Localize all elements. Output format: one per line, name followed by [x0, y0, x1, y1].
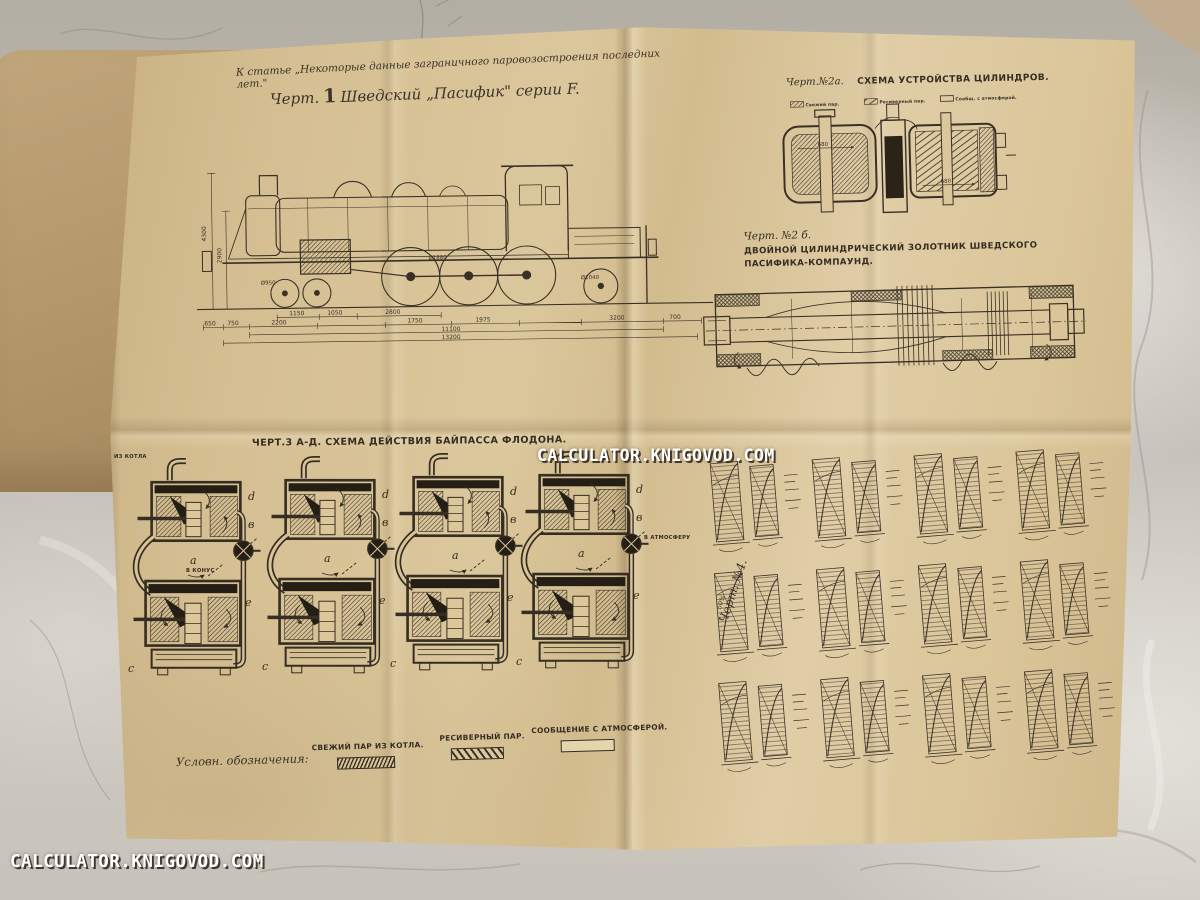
- bypass-side-label: в атмосферу: [644, 535, 690, 541]
- bypass-diagram: в атмосферуaвcde: [516, 449, 652, 689]
- bypass-top-label: из котла: [114, 454, 147, 460]
- bypass-side-label: в конус: [186, 568, 215, 574]
- legend-label-receiver: Ресиверный пар.: [439, 731, 525, 742]
- part-letter: в: [510, 513, 516, 526]
- legend-label-fresh: Свежий пар из котла.: [312, 740, 424, 752]
- indicator-diagram-cell: [916, 661, 1020, 771]
- indicator-diagram-cell: [1009, 437, 1113, 547]
- part-letter: d: [510, 485, 517, 498]
- indicator-diagram-cell: [814, 664, 918, 774]
- indicator-diagram-cell: [810, 555, 914, 665]
- fig2a-legend-2: Сообщ. с атмосферой.: [955, 94, 1017, 103]
- legend-title: Условн. обозначения:: [176, 751, 309, 769]
- dim-row1-0: 650: [204, 320, 216, 327]
- part-letter: c: [128, 662, 134, 675]
- indicator-diagram-cell: [907, 441, 1011, 551]
- dim-row0-2: 2800: [385, 309, 401, 316]
- dim-row0-0: 1150: [289, 310, 305, 317]
- dim-row1-6: 700: [669, 314, 681, 321]
- fig2a-legend-1: Ресиверный пар.: [879, 97, 925, 105]
- dim-row1-3: 1750: [407, 317, 423, 324]
- part-letter: e: [379, 594, 386, 607]
- dim-wheel-rear: Ø1040: [581, 274, 600, 281]
- fig2b-drawing: [700, 251, 1092, 403]
- part-letter: e: [633, 589, 640, 602]
- dim-row0-1: 1050: [327, 310, 343, 317]
- photo-stage: К статье „Некоторые данные заграничного …: [0, 0, 1200, 900]
- indicator-diagram-cell: [712, 668, 816, 778]
- fig1-label: Черт.: [270, 89, 320, 109]
- fig2a-dim-right: 680: [940, 179, 951, 185]
- fig2a-dim-left: 680: [817, 142, 828, 148]
- dim-total2: 13200: [441, 334, 460, 341]
- bypass-drawing: [262, 454, 398, 694]
- legend-swatch-fresh: [337, 756, 395, 770]
- dim-row1-2: 2200: [271, 319, 287, 326]
- part-letter: в: [636, 511, 642, 524]
- part-letter: e: [507, 591, 514, 604]
- bypass-drawing: [390, 451, 526, 691]
- part-letter: d: [248, 490, 255, 503]
- part-letter: e: [245, 596, 252, 609]
- indicator-diagram-cell: [1018, 657, 1122, 767]
- dim-total1: 11100: [441, 326, 460, 333]
- dim-wheel-driver: Ø1880: [428, 254, 447, 261]
- bypass-diagram: из котлав конусaвcde: [128, 456, 264, 696]
- indicator-diagram-cell: [912, 551, 1016, 661]
- dim-row1-4: 1975: [475, 316, 491, 323]
- fig2b-label: Черт. №2 б.: [744, 229, 812, 242]
- legend-swatch-atmosphere: [561, 739, 615, 753]
- fig2a-legend-0: Свежий пар.: [805, 101, 839, 109]
- fig2a-label: Черт.№2а.: [786, 76, 844, 88]
- dim-height2: 2900: [216, 248, 223, 264]
- part-letter: d: [382, 488, 389, 501]
- bypass-drawing: [516, 449, 652, 689]
- indicator-diagram-cell: [1014, 547, 1118, 657]
- part-letter: a: [324, 552, 331, 565]
- indicator-diagram-cell: [708, 558, 812, 668]
- part-letter: a: [578, 547, 585, 560]
- bypass-diagram: aвcde: [262, 454, 398, 694]
- part-letter: a: [190, 554, 197, 567]
- dim-row1-1: 750: [227, 320, 239, 327]
- bypass-drawing: [128, 456, 264, 696]
- dim-height1: 4300: [201, 226, 208, 242]
- part-letter: d: [636, 483, 643, 496]
- part-letter: a: [452, 549, 459, 562]
- fig1-number: 1: [319, 85, 341, 108]
- watermark-center: CALCULATOR.KNIGOVOD.COM: [537, 446, 775, 465]
- dim-wheel-front: Ø950: [261, 279, 276, 286]
- indicator-diagram-cell: [806, 445, 910, 555]
- locomotive-drawing: 4300 2900 Ø950 Ø1880 Ø1040 1150 1050 280…: [186, 106, 721, 347]
- indicator-diagram-grid: [706, 438, 1139, 788]
- legend-label-atmosphere: Сообщение с атмосферой.: [531, 722, 667, 735]
- bypass-diagram: aвcde: [390, 451, 526, 691]
- part-letter: в: [248, 518, 254, 531]
- legend-swatch-receiver: [451, 747, 504, 760]
- watermark-bottom-left: CALCULATOR.KNIGOVOD.COM: [10, 852, 264, 872]
- dim-row1-5: 3200: [609, 315, 625, 322]
- part-letter: в: [382, 516, 388, 529]
- fig2a-drawing: Свежий пар. Ресиверный пар. Сообщ. с атм…: [776, 91, 1021, 231]
